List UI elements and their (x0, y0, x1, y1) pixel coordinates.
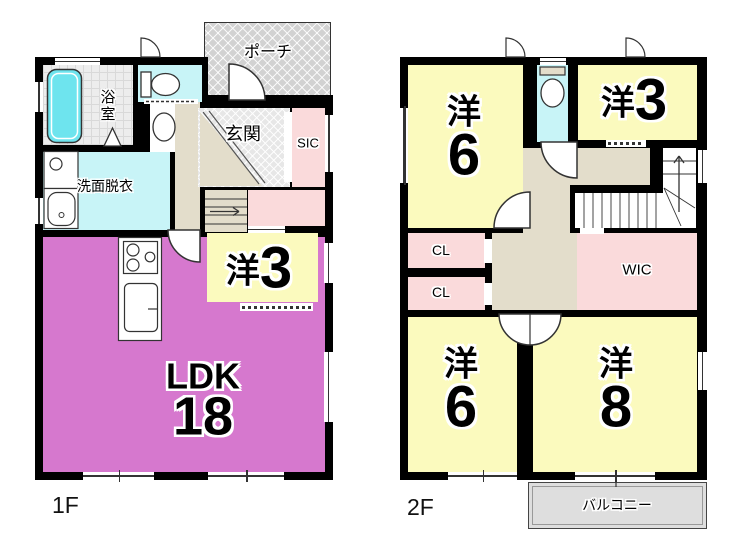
room-size: 3 (260, 235, 292, 302)
room-closet-1f (248, 190, 325, 226)
door-opening (248, 226, 285, 233)
label-sic: SIC (297, 136, 319, 151)
floor-plan: ポーチ 浴室 洗面脱衣 玄関 SIC 洋3 LDK 18 1F 洋6 洋3 CL… (0, 0, 740, 550)
window-arc (506, 38, 525, 57)
label-porch: ポーチ (244, 38, 292, 62)
label-bedroom6a-2f: 洋6 (447, 98, 481, 183)
door-opening (484, 239, 492, 263)
sliding-door (606, 140, 646, 147)
room-size: 6 (445, 381, 477, 434)
window (83, 472, 154, 480)
room-toilet-1f (138, 65, 202, 102)
door-opening (284, 112, 292, 182)
window (35, 198, 43, 224)
room-size: 8 (600, 381, 632, 434)
window-arc (141, 38, 160, 57)
label-washroom: 洗面脱衣 (77, 176, 133, 196)
door-opening (484, 283, 492, 305)
hall-2f-lower (492, 233, 577, 310)
room-kanji: 洋 (601, 76, 635, 125)
sliding-door (240, 303, 313, 311)
window (698, 352, 707, 390)
label-bedroom8-2f: 洋8 (599, 350, 633, 435)
label-ldk: LDK 18 (166, 360, 240, 443)
window (325, 115, 333, 172)
label-floor-1f: 1F (52, 492, 79, 519)
label-bath: 浴室 (97, 89, 118, 123)
window (324, 352, 333, 422)
window (324, 243, 333, 283)
door-opening (580, 227, 604, 234)
window (55, 58, 100, 65)
label-bedroom3-1f: 洋3 (226, 235, 292, 302)
room-kanji: 洋 (226, 244, 260, 293)
window (448, 472, 517, 480)
window (540, 58, 566, 65)
hall-2f-corridor (523, 185, 570, 233)
label-cl-upper: CL (432, 242, 450, 258)
window (575, 472, 655, 480)
label-floor-2f: 2F (407, 494, 434, 521)
room-size: 6 (448, 129, 480, 182)
label-bedroom6b-2f: 洋6 (444, 350, 478, 435)
window-arc (626, 38, 645, 57)
window (35, 82, 43, 112)
label-cl-lower: CL (432, 284, 450, 300)
hall-1f (175, 102, 200, 232)
label-wic: WIC (622, 262, 651, 279)
room-size: 3 (635, 67, 667, 134)
room-toilet-2f (537, 65, 568, 142)
label-balcony: バルコニー (582, 495, 652, 515)
room-bath (43, 65, 133, 145)
window (400, 108, 408, 183)
label-bedroom3-2f: 洋3 (601, 67, 667, 134)
room-basin-alcove (150, 104, 178, 152)
window (208, 472, 284, 480)
window (698, 150, 707, 183)
hall-2f-upper (523, 148, 650, 185)
room-size: 18 (173, 393, 233, 443)
label-entrance: 玄関 (225, 120, 261, 146)
